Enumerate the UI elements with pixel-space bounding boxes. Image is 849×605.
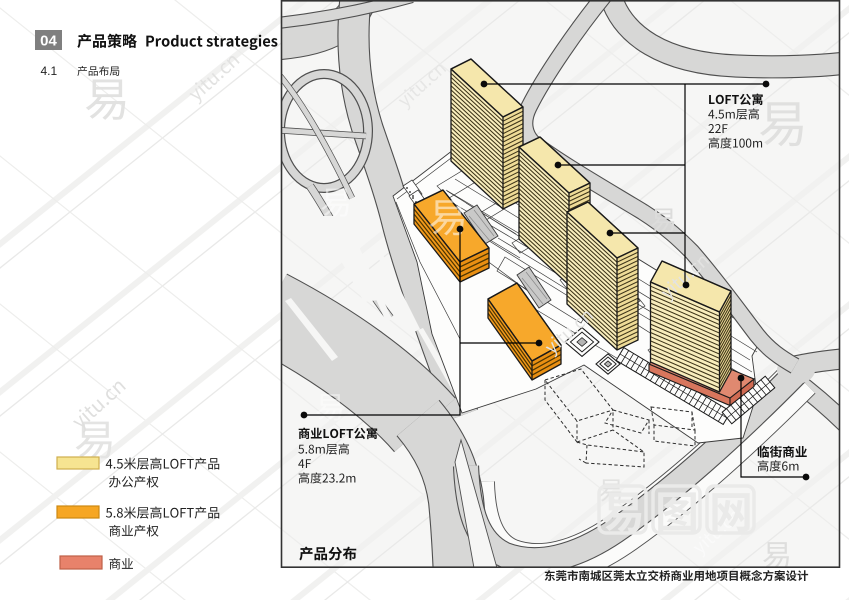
svg-text:04: 04 (40, 33, 57, 50)
svg-text:4.1: 4.1 (41, 64, 58, 78)
